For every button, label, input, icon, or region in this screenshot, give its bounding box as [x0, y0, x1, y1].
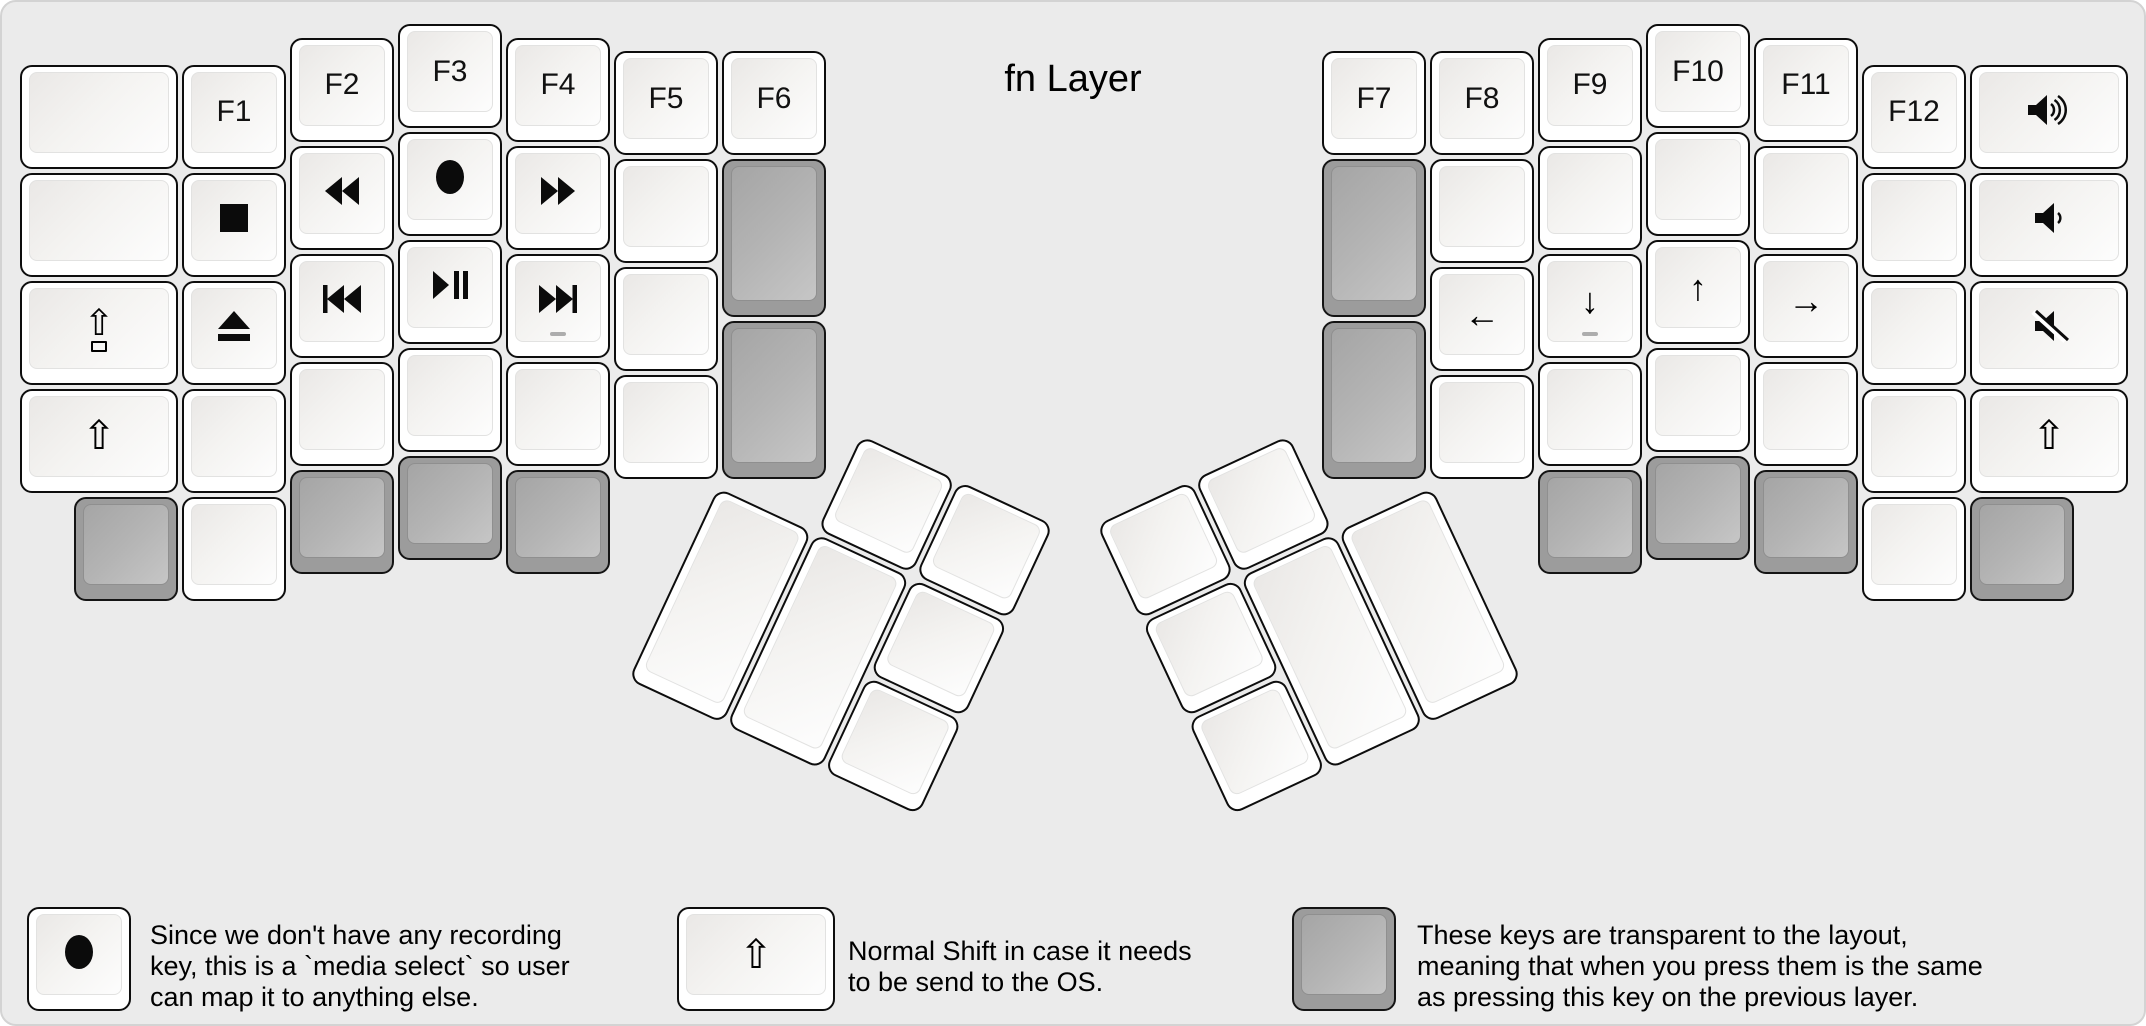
legend-line: as pressing this key on the previous lay…: [1417, 982, 1983, 1013]
key-label: F12: [1888, 95, 1940, 129]
key-f11[interactable]: F11: [1754, 38, 1858, 142]
keycap-top: [407, 247, 493, 328]
legend-key-1: [27, 907, 131, 1011]
keycap-top: [1439, 382, 1525, 463]
keycap-top: [407, 355, 493, 436]
key-transparent[interactable]: [722, 159, 826, 317]
keycap-top: [83, 504, 169, 585]
legend-text-3: These keys are transparent to the layout…: [1417, 920, 1983, 1013]
key-arrow-up[interactable]: ↑: [1646, 240, 1750, 344]
legend-line: meaning that when you press them is the …: [1417, 951, 1983, 982]
keycap-top: [29, 180, 169, 261]
keycap-top: [1439, 166, 1525, 247]
key-blank[interactable]: [398, 348, 502, 452]
volume-down-icon: [2031, 200, 2067, 241]
key-transparent[interactable]: [1322, 159, 1426, 317]
homing-dash: [550, 332, 566, 336]
keycap-top: [1871, 504, 1957, 585]
keycap-top: [1301, 914, 1387, 995]
keycap-top: [515, 369, 601, 450]
key-rewind[interactable]: [290, 146, 394, 250]
key-f3[interactable]: F3: [398, 24, 502, 128]
key-volume-down[interactable]: [1970, 173, 2128, 277]
key-transparent[interactable]: [398, 456, 502, 560]
key-label: F3: [432, 55, 467, 89]
volume-up-icon: [2026, 92, 2072, 133]
legend-line: key, this is a `media select` so user: [150, 951, 570, 982]
keycap-top: [299, 369, 385, 450]
fast-forward-icon: [540, 175, 576, 212]
keycap-top: ⇧: [1979, 396, 2119, 477]
keycap-top: F12: [1871, 72, 1957, 153]
key-blank[interactable]: [506, 362, 610, 466]
keycap-top: [832, 446, 944, 556]
keycap-top: ↓: [1547, 261, 1633, 342]
key-volume-mute[interactable]: [1970, 281, 2128, 385]
keycap-top: [623, 274, 709, 355]
key-transparent[interactable]: [1322, 321, 1426, 479]
key-transparent[interactable]: [1970, 497, 2074, 601]
key-eject[interactable]: [182, 281, 286, 385]
keycap-top: [515, 153, 601, 234]
key-blank[interactable]: [614, 267, 718, 371]
key-caps-lock[interactable]: ⇧: [20, 281, 178, 385]
key-blank[interactable]: [1754, 362, 1858, 466]
keyboard-layout-canvas: fn Layer ⇧⇧F1F2F3F4F5F6 F7F8←F9↓F10↑F11→…: [0, 0, 2146, 1026]
keycap-top: [191, 396, 277, 477]
key-stop[interactable]: [182, 173, 286, 277]
keycap-top: [29, 72, 169, 153]
keycap-top: [1199, 687, 1311, 797]
keycap-top: F11: [1763, 45, 1849, 126]
key-blank[interactable]: [20, 65, 178, 169]
keycap-top: F3: [407, 31, 493, 112]
keycap-top: [1547, 477, 1633, 558]
key-shift[interactable]: ⇧: [1970, 389, 2128, 493]
key-fast-forward[interactable]: [506, 146, 610, 250]
key-blank[interactable]: [614, 375, 718, 479]
keycap-top: [623, 166, 709, 247]
keycap-top: [1871, 180, 1957, 261]
key-play-pause[interactable]: [398, 240, 502, 344]
keycap-top: [407, 463, 493, 544]
key-blank[interactable]: [1646, 132, 1750, 236]
keycap-top: [407, 139, 493, 220]
keycap-top: [1331, 166, 1417, 301]
key-label: F10: [1672, 55, 1724, 89]
keycap-top: F8: [1439, 58, 1525, 139]
keycap-top: F6: [731, 58, 817, 139]
keycap-top: [1763, 153, 1849, 234]
keycap-top: F10: [1655, 31, 1741, 112]
keycap-top: [1979, 288, 2119, 369]
key-label: F1: [216, 95, 251, 129]
keycap-top: ←: [1439, 274, 1525, 355]
key-transparent[interactable]: [74, 497, 178, 601]
keycap-top: [1763, 477, 1849, 558]
keycap-top: →: [1763, 261, 1849, 342]
eject-icon: [217, 311, 251, 346]
key-label: F5: [648, 82, 683, 116]
key-f1[interactable]: F1: [182, 65, 286, 169]
arrow-down-icon: ↓: [1581, 283, 1599, 319]
keycap-top: [1763, 369, 1849, 450]
keycap-top: [1871, 288, 1957, 369]
key-label: F8: [1464, 82, 1499, 116]
key-transparent[interactable]: [1538, 470, 1642, 574]
keycap-top: ⇧: [29, 288, 169, 369]
key-f10[interactable]: F10: [1646, 24, 1750, 128]
shift-icon: ⇧: [2032, 416, 2066, 456]
shift-icon: ⇧: [739, 935, 773, 975]
key-transparent[interactable]: [1754, 470, 1858, 574]
keycap-top: [191, 504, 277, 585]
keycap-top: [1979, 72, 2119, 153]
keycap-top: [623, 382, 709, 463]
key-blank[interactable]: [1430, 375, 1534, 479]
key-blank[interactable]: [1754, 146, 1858, 250]
arrow-up-icon: ↑: [1689, 270, 1707, 306]
key-blank[interactable]: [290, 362, 394, 466]
keycap-top: F5: [623, 58, 709, 139]
keycap-top: [299, 477, 385, 558]
legend-line: Normal Shift in case it needs: [848, 936, 1192, 967]
keycap-top: [515, 261, 601, 342]
keycap-top: [1979, 180, 2119, 261]
keycap-top: [731, 328, 817, 463]
key-volume-up[interactable]: [1970, 65, 2128, 169]
key-transparent[interactable]: [722, 321, 826, 479]
key-f12[interactable]: F12: [1862, 65, 1966, 169]
shift-icon: ⇧: [82, 416, 116, 456]
legend-line: These keys are transparent to the layout…: [1417, 920, 1983, 951]
keycap-top: [1979, 504, 2065, 585]
key-transparent[interactable]: [1646, 456, 1750, 560]
keycap-top: [299, 153, 385, 234]
keycap-top: ⇧: [29, 396, 169, 477]
key-blank[interactable]: [1862, 497, 1966, 601]
key-blank[interactable]: [1646, 348, 1750, 452]
legend-line: can map it to anything else.: [150, 982, 570, 1013]
key-arrow-down[interactable]: ↓: [1538, 254, 1642, 358]
keycap-top: [191, 288, 277, 369]
key-f2[interactable]: F2: [290, 38, 394, 142]
legend-key-2: ⇧: [677, 907, 835, 1011]
keycap-top: F2: [299, 45, 385, 126]
key-label: F4: [540, 68, 575, 102]
homing-dash: [1582, 332, 1598, 336]
key-next-track[interactable]: [506, 254, 610, 358]
keycap-top: [1655, 463, 1741, 544]
key-label: F11: [1781, 68, 1830, 102]
key-record[interactable]: [398, 132, 502, 236]
keycap-top: F1: [191, 72, 277, 153]
key-shift[interactable]: ⇧: [20, 389, 178, 493]
rewind-icon: [324, 175, 360, 212]
keycap-top: [1547, 369, 1633, 450]
prev-track-icon: [322, 283, 362, 320]
next-track-icon: [538, 283, 578, 320]
key-arrow-left[interactable]: ←: [1430, 267, 1534, 371]
key-blank[interactable]: [1538, 362, 1642, 466]
keycap-top: [1655, 355, 1741, 436]
record-icon: [63, 933, 95, 976]
key-f8[interactable]: F8: [1430, 51, 1534, 155]
keycap-top: [36, 914, 122, 995]
legend-line: Since we don't have any recording: [150, 920, 570, 951]
keycap-top: [1205, 446, 1317, 556]
record-icon: [434, 158, 466, 201]
key-blank[interactable]: [614, 159, 718, 263]
legend-line: to be send to the OS.: [848, 967, 1192, 998]
keycap-top: F9: [1547, 45, 1633, 126]
keycap-top: [515, 477, 601, 558]
keycap-top: [191, 180, 277, 261]
key-blank[interactable]: [1538, 146, 1642, 250]
key-blank[interactable]: [1430, 159, 1534, 263]
legend-text-2: Normal Shift in case it needsto be send …: [848, 936, 1192, 998]
keycap-top: ↑: [1655, 247, 1741, 328]
key-label: F9: [1572, 68, 1607, 102]
keycap-top: [1331, 328, 1417, 463]
arrow-left-icon: ←: [1464, 297, 1500, 333]
keycap-top: [731, 166, 817, 301]
key-blank[interactable]: [1862, 281, 1966, 385]
key-label: F7: [1356, 82, 1391, 116]
legend-text-1: Since we don't have any recordingkey, th…: [150, 920, 570, 1013]
key-blank[interactable]: [1862, 173, 1966, 277]
keycap-top: F7: [1331, 58, 1417, 139]
keycap-top: [1871, 396, 1957, 477]
keycap-top: [299, 261, 385, 342]
key-transparent[interactable]: [290, 470, 394, 574]
key-f6[interactable]: F6: [722, 51, 826, 155]
key-f7[interactable]: F7: [1322, 51, 1426, 155]
keycap-top: [930, 491, 1042, 601]
key-blank[interactable]: [182, 497, 286, 601]
key-transparent[interactable]: [506, 470, 610, 574]
key-label: F6: [756, 82, 791, 116]
play-pause-icon: [431, 269, 469, 306]
volume-mute-icon: [2029, 308, 2069, 349]
key-f5[interactable]: F5: [614, 51, 718, 155]
key-blank[interactable]: [1862, 389, 1966, 493]
legend-key-3: [1292, 907, 1396, 1011]
key-prev-track[interactable]: [290, 254, 394, 358]
key-f4[interactable]: F4: [506, 38, 610, 142]
key-f9[interactable]: F9: [1538, 38, 1642, 142]
keycap-top: [1153, 589, 1265, 699]
keycap-top: [1107, 491, 1219, 601]
keycap-top: [1655, 139, 1741, 220]
caps-lock-icon: ⇧: [84, 305, 114, 352]
stop-icon: [219, 203, 249, 238]
keycap-top: ⇧: [686, 914, 826, 995]
keycap-top: F4: [515, 45, 601, 126]
arrow-right-icon: →: [1788, 283, 1824, 319]
key-blank[interactable]: [20, 173, 178, 277]
key-blank[interactable]: [182, 389, 286, 493]
keycap-top: [1547, 153, 1633, 234]
key-arrow-right[interactable]: →: [1754, 254, 1858, 358]
key-label: F2: [324, 68, 359, 102]
